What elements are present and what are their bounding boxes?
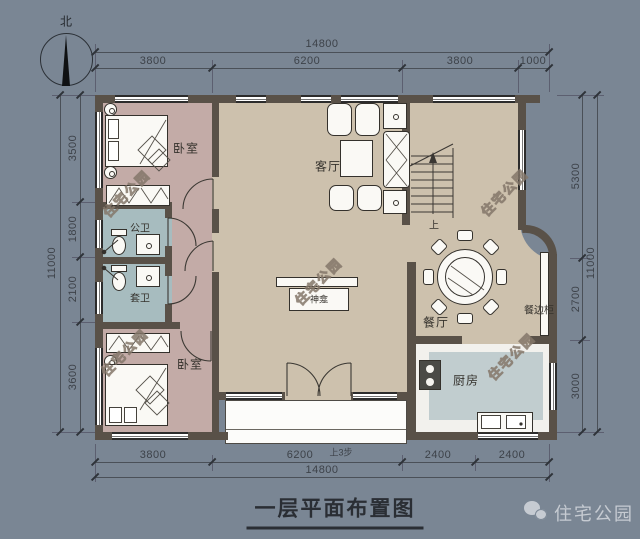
side-table	[383, 190, 407, 214]
dim-ext	[212, 455, 213, 471]
dim-bottom-seg-2: 6200	[287, 449, 313, 461]
dim-right-total: 11000	[585, 247, 597, 279]
toilet	[112, 236, 126, 255]
window-living-north-1	[236, 95, 266, 103]
wall-corridor-east-b	[212, 272, 219, 322]
dim-ext	[402, 455, 403, 471]
dim-bottom-seg-4: 2400	[499, 449, 525, 461]
sink	[136, 234, 160, 255]
brand-name: 住宅公园	[554, 500, 634, 526]
toilet-tank	[111, 265, 127, 272]
compass-north-label: 北	[60, 13, 72, 30]
dim-line-bottom-total	[95, 477, 549, 478]
wall-dining-east	[549, 254, 557, 342]
dim-bottom-seg-1: 3800	[140, 449, 166, 461]
label-sideboard: 餐边柜	[524, 302, 554, 317]
dim-left-seg-1: 3500	[67, 135, 79, 161]
label-bath-ensuite: 套卫	[130, 290, 150, 305]
chair	[357, 185, 382, 211]
dim-ext	[72, 202, 95, 203]
dim-bottom-total: 14800	[305, 464, 338, 476]
window-bedroom-nw-north	[115, 95, 188, 103]
wall-bedroom-nw-east	[212, 95, 219, 177]
dining-chair	[457, 313, 473, 324]
dim-right-seg-1: 5300	[570, 163, 582, 189]
wall-kitchen-north-a	[416, 336, 462, 344]
side-table	[383, 103, 407, 129]
pillow	[124, 407, 137, 423]
sofa	[383, 131, 410, 188]
dim-line-bottom-segments	[95, 462, 549, 463]
dim-right-seg-2: 2700	[570, 286, 582, 312]
dim-line-top-total	[95, 52, 549, 53]
sink	[136, 266, 160, 287]
wall-corridor-east-a	[212, 209, 219, 233]
pillow	[109, 407, 122, 423]
wall-living-east	[407, 262, 416, 440]
dining-chair	[496, 269, 507, 285]
pillow	[108, 141, 119, 161]
window-kitchen-south	[478, 432, 538, 440]
window-bath-public-west	[95, 220, 103, 248]
wall-bath-divider	[95, 257, 172, 264]
sideboard-cabinet	[540, 252, 549, 336]
pillow	[108, 119, 119, 139]
dim-right-seg-3: 3000	[570, 373, 582, 399]
toilet	[112, 272, 126, 291]
dim-left-total: 11000	[46, 247, 58, 279]
label-bedroom-nw: 卧室	[173, 140, 199, 157]
window-entry-right	[353, 392, 397, 400]
dim-line-left-total	[60, 95, 61, 432]
floor-plan-canvas: 北 14800 3800 6200 3800 1000 3800 6200 上3…	[0, 0, 640, 539]
dining-chair	[423, 269, 434, 285]
porch-step-line	[226, 429, 406, 430]
dim-bottom-seg-3: 2400	[425, 449, 451, 461]
floor-kitchen	[429, 352, 543, 420]
window-bedroom-nw-west	[95, 112, 103, 188]
floor-stair-hall	[402, 103, 525, 233]
label-living: 客厅	[315, 158, 341, 175]
dim-line-top-segments	[95, 68, 549, 69]
dim-ext	[72, 322, 95, 323]
dining-table-top	[445, 257, 485, 297]
wechat-icon	[524, 500, 550, 524]
window-living-north-2	[301, 95, 331, 103]
dim-steps-note: 上3步	[329, 446, 352, 459]
armchair	[327, 103, 352, 136]
entrance-porch	[225, 400, 407, 444]
dim-left-seg-3: 2100	[67, 276, 79, 302]
dim-top-seg-4: 1000	[520, 55, 546, 67]
window-bath-ensuite-west	[95, 282, 103, 314]
compass-icon	[40, 33, 93, 86]
dim-left-seg-2: 1800	[67, 216, 79, 242]
window-entry-left	[226, 392, 282, 400]
window-stair-hall-north	[433, 95, 515, 103]
label-stairs-up: 上	[429, 217, 439, 232]
label-bath-public: 公卫	[130, 220, 150, 235]
plan-title: 一层平面布置图	[247, 493, 424, 530]
sink-basin	[506, 415, 526, 429]
label-dining: 餐厅	[423, 314, 449, 331]
toilet-tank	[111, 229, 127, 236]
wall-bedroom-sw-east	[212, 322, 219, 432]
dim-line-right-segments	[582, 95, 583, 432]
dim-line-right-total	[597, 95, 598, 432]
dim-line-left-segments	[80, 95, 81, 432]
window-kitchen-east	[549, 363, 557, 410]
dim-left-seg-4: 3600	[67, 364, 79, 390]
label-bedroom-sw: 卧室	[177, 356, 203, 373]
window-bedroom-sw-south	[112, 432, 188, 440]
dim-top-seg-3: 3800	[447, 55, 473, 67]
window-living-north-3	[341, 95, 398, 103]
coffee-table	[340, 140, 373, 177]
dim-ext	[72, 257, 95, 258]
dim-top-seg-2: 6200	[294, 55, 320, 67]
armchair	[355, 103, 380, 136]
dim-ext	[475, 455, 476, 471]
label-kitchen: 厨房	[453, 372, 479, 389]
nightstand	[104, 166, 117, 179]
floor-corridor	[165, 202, 219, 329]
sink-basin	[481, 415, 501, 429]
stove	[419, 360, 441, 390]
dining-chair	[457, 230, 473, 241]
chair	[329, 185, 354, 211]
dim-top-seg-1: 3800	[140, 55, 166, 67]
dim-top-total: 14800	[305, 38, 338, 50]
